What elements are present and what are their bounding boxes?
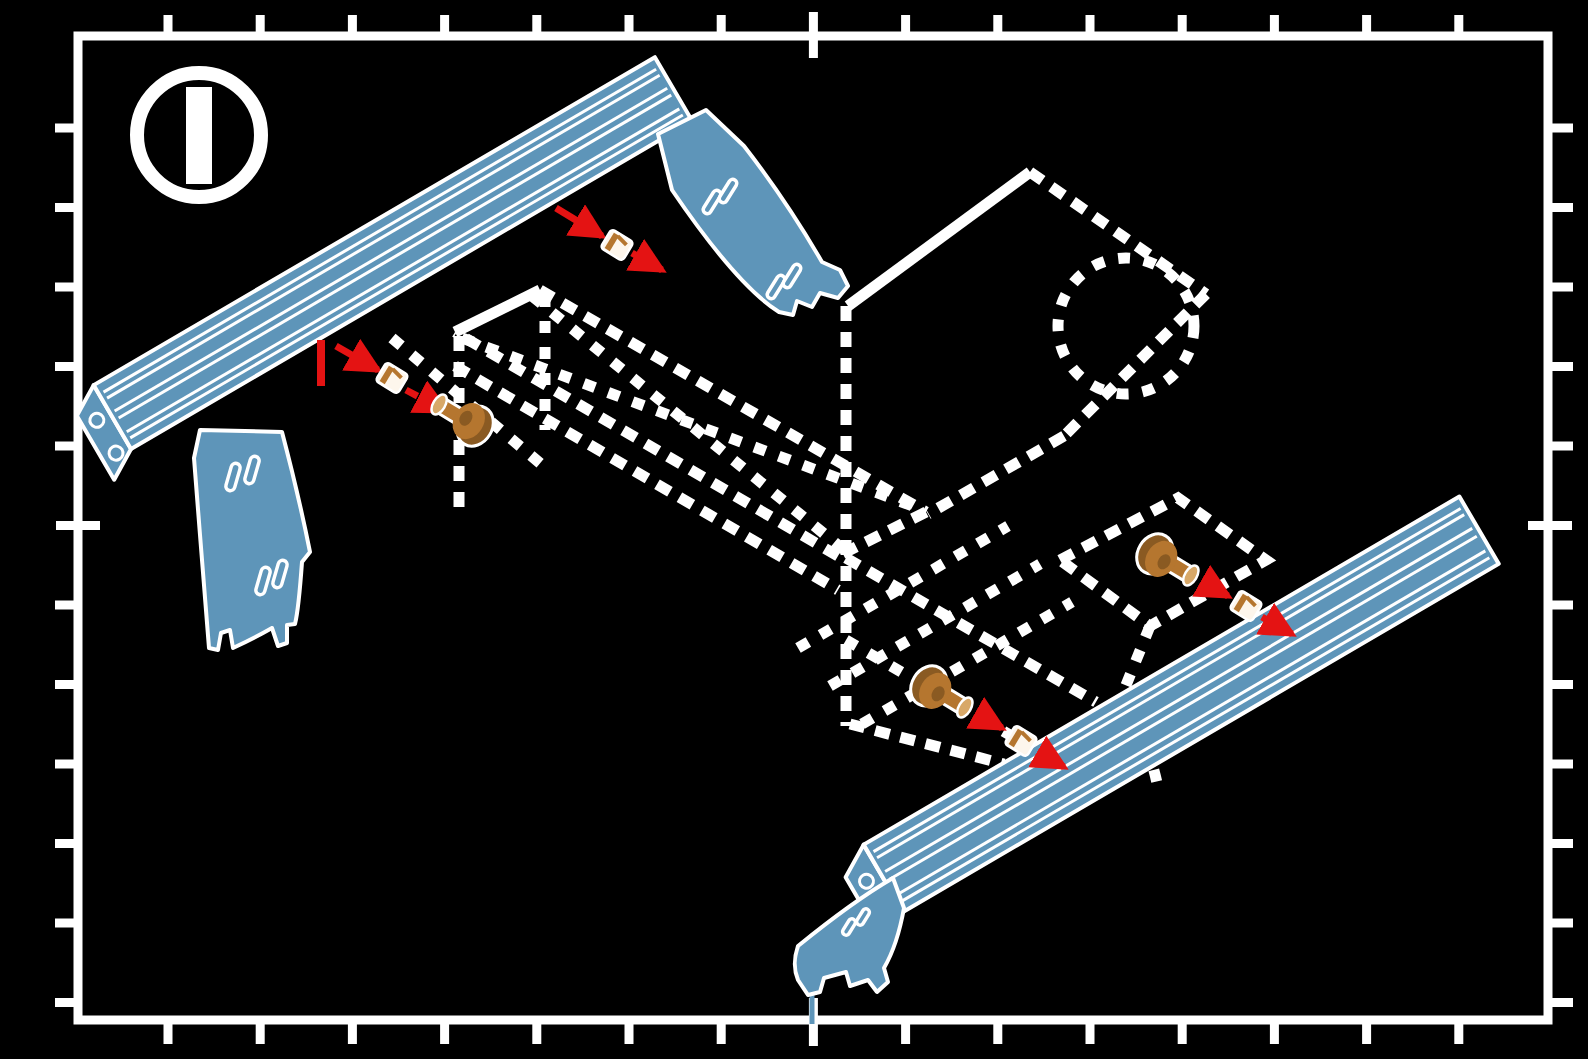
ruler-tick	[1178, 1022, 1187, 1044]
ruler-tick	[1551, 919, 1573, 928]
ruler-tick	[993, 1022, 1002, 1044]
ruler-tick	[625, 1022, 634, 1044]
ruler-tick	[809, 12, 818, 58]
ruler-tick	[55, 680, 77, 689]
assembly-diagram-canvas: 1	[0, 0, 1588, 1059]
t-nut-icon	[600, 229, 634, 261]
ruler-tick	[55, 919, 77, 928]
fastener-bottom	[903, 659, 1064, 767]
machine-edge	[848, 172, 1030, 306]
machine-bed-edge	[455, 290, 540, 332]
insertion-arrow-icon	[632, 253, 662, 270]
ruler-tick	[348, 15, 357, 36]
ruler-tick	[1551, 283, 1573, 292]
ruler-tick	[55, 283, 77, 292]
t-nut-icon	[375, 362, 409, 394]
ruler-tick	[1528, 521, 1572, 530]
ruler-tick	[1362, 1022, 1371, 1044]
screw-icon	[1129, 527, 1206, 596]
ruler-tick	[1551, 680, 1573, 689]
machine-rail	[850, 724, 1004, 764]
insertion-arrow-icon	[336, 346, 378, 370]
ruler-tick	[348, 1022, 357, 1044]
ruler-tick	[256, 1022, 265, 1044]
screw-icon	[903, 659, 980, 728]
left-bracket-plate	[194, 430, 310, 650]
assembly-instruction-page: 1	[0, 0, 1588, 1059]
ruler-tick	[1454, 1022, 1463, 1044]
ruler-tick	[55, 442, 77, 451]
ruler-tick	[1551, 998, 1573, 1007]
bottom-bracket-plate	[795, 878, 904, 1024]
ruler-tick	[1551, 760, 1573, 769]
ruler-tick	[1551, 601, 1573, 610]
ruler-tick	[55, 760, 77, 769]
ruler-tick	[1270, 1022, 1279, 1044]
ruler-tick	[56, 521, 100, 530]
ruler-tick	[1551, 442, 1573, 451]
ruler-tick	[532, 1022, 541, 1044]
step-number-badge: 1	[137, 73, 261, 197]
ruler-tick	[532, 15, 541, 36]
ruler-tick	[1178, 15, 1187, 36]
ruler-tick	[1551, 839, 1573, 848]
ruler-tick	[440, 15, 449, 36]
machine-bed-lower-edge	[455, 366, 838, 590]
ruler-tick	[1086, 1022, 1095, 1044]
machine-edge	[1064, 294, 1206, 436]
machine-edge	[928, 436, 1064, 514]
ruler-tick	[1454, 15, 1463, 36]
ruler-tick	[256, 15, 265, 36]
ruler-tick	[440, 1022, 449, 1044]
ruler-tick	[993, 15, 1002, 36]
ruler-tick	[164, 1022, 173, 1044]
step-number-digit	[186, 87, 212, 184]
ruler-tick	[1551, 203, 1573, 212]
ruler-tick	[1270, 15, 1279, 36]
ruler-tick	[717, 15, 726, 36]
machine-rail	[846, 558, 1096, 702]
fastener-top	[556, 208, 662, 270]
ruler-tick	[164, 15, 173, 36]
machine-edge	[1030, 172, 1206, 294]
ruler-tick	[1551, 124, 1573, 133]
ruler-tick	[1551, 362, 1573, 371]
right-bracket-plate	[658, 110, 848, 315]
ruler-tick	[1362, 15, 1371, 36]
ruler-tick	[1086, 15, 1095, 36]
ruler-tick	[55, 998, 77, 1007]
ruler-tick	[55, 362, 77, 371]
ruler-tick	[717, 1022, 726, 1044]
ruler-tick	[55, 601, 77, 610]
machine-bed-edge	[540, 290, 926, 512]
insertion-arrow-icon	[556, 208, 602, 236]
ruler-tick	[901, 15, 910, 36]
ruler-tick	[55, 839, 77, 848]
ruler-tick	[55, 124, 77, 133]
ruler-tick	[625, 15, 634, 36]
ruler-tick	[55, 203, 77, 212]
ruler-tick	[901, 1022, 910, 1044]
